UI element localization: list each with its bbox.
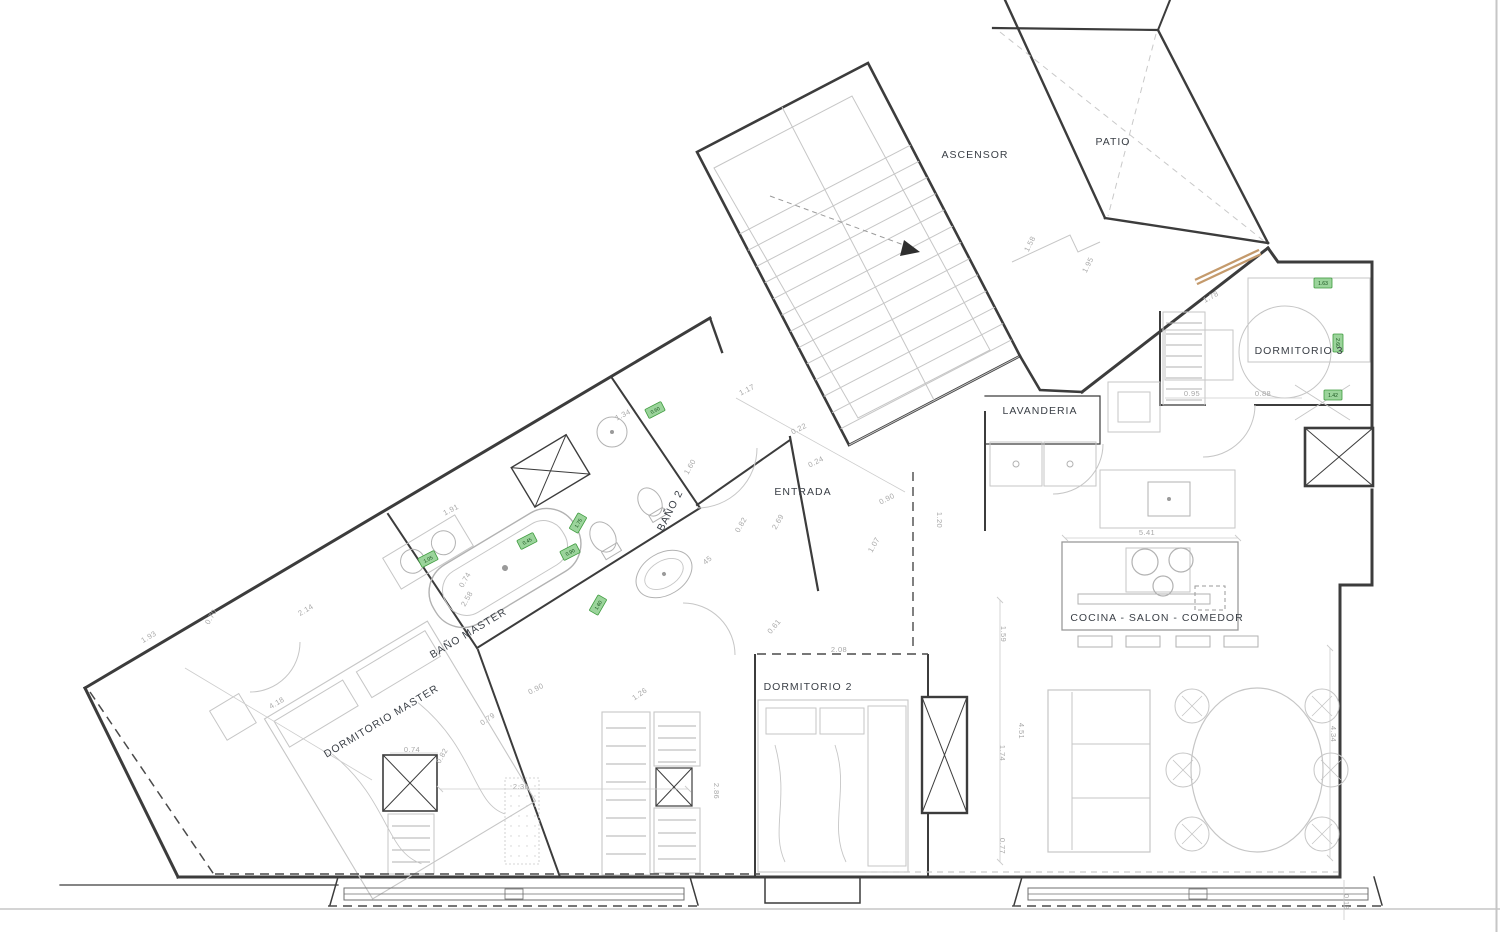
rug-dot <box>510 785 511 786</box>
rug-dot <box>534 815 535 816</box>
dimension-label: 4.51 <box>1017 723 1026 739</box>
rug-dot <box>526 795 527 796</box>
green-tag: 1.42 <box>1324 390 1342 400</box>
rug-dot <box>510 855 511 856</box>
dimension-label: 0.18 <box>1342 894 1351 910</box>
green-tag: 1.63 <box>1314 278 1332 288</box>
rug-dot <box>534 835 535 836</box>
dimension-label: 1.74 <box>998 745 1007 761</box>
room-label: ASCENSOR <box>942 149 1009 161</box>
dimension-label: 1.20 <box>935 512 944 528</box>
dimension-label: 0.95 <box>1184 389 1200 398</box>
rug-dot <box>534 825 535 826</box>
rug-dot <box>518 795 519 796</box>
dimension-label: 2.36 <box>513 782 529 791</box>
rug-dot <box>518 835 519 836</box>
room-label: DORMITORIO 2 <box>764 681 853 693</box>
rug-dot <box>526 845 527 846</box>
rug-dot <box>518 855 519 856</box>
room-label: ENTRADA <box>774 486 831 498</box>
dimension-label: 2.86 <box>712 783 721 799</box>
dimension-label: 0.77 <box>998 838 1007 854</box>
rug-dot <box>518 825 519 826</box>
rug-dot <box>510 845 511 846</box>
rug-dot <box>518 815 519 816</box>
dimension-label: 4.34 <box>1329 726 1338 742</box>
rug-dot <box>534 855 535 856</box>
dimension-label: 1.59 <box>999 626 1008 642</box>
rug-dot <box>534 845 535 846</box>
rug-dot <box>534 795 535 796</box>
sink-faucet-dot <box>1167 497 1171 501</box>
rug-dot <box>526 855 527 856</box>
rug-dot <box>518 845 519 846</box>
rug-dot <box>510 835 511 836</box>
rug-dot <box>510 825 511 826</box>
room-label: PATIO <box>1096 136 1131 148</box>
dimension-label: 5.41 <box>1139 528 1155 537</box>
dimension-label: 0.88 <box>1255 389 1271 398</box>
dimension-label: 2.08 <box>831 645 847 654</box>
sink-dot <box>610 430 614 434</box>
rug-dot <box>510 795 511 796</box>
rug-dot <box>526 835 527 836</box>
rug-dot <box>510 805 511 806</box>
green-tag-value: 1.63 <box>1318 281 1328 287</box>
rug-dot <box>526 815 527 816</box>
dimension-label: 0.74 <box>404 745 420 754</box>
rug-dot <box>534 805 535 806</box>
rug-dot <box>526 825 527 826</box>
green-tag-value: 1.42 <box>1328 393 1338 399</box>
room-label: DORMITORIO 3 <box>1255 345 1344 357</box>
floor-plan-canvas: 1.581.951.780.950.885.411.170.220.240.90… <box>0 0 1500 932</box>
rug-dot <box>534 785 535 786</box>
rug-dot <box>518 805 519 806</box>
room-label: COCINA - SALON - COMEDOR <box>1070 612 1243 624</box>
room-label: LAVANDERIA <box>1003 405 1078 417</box>
